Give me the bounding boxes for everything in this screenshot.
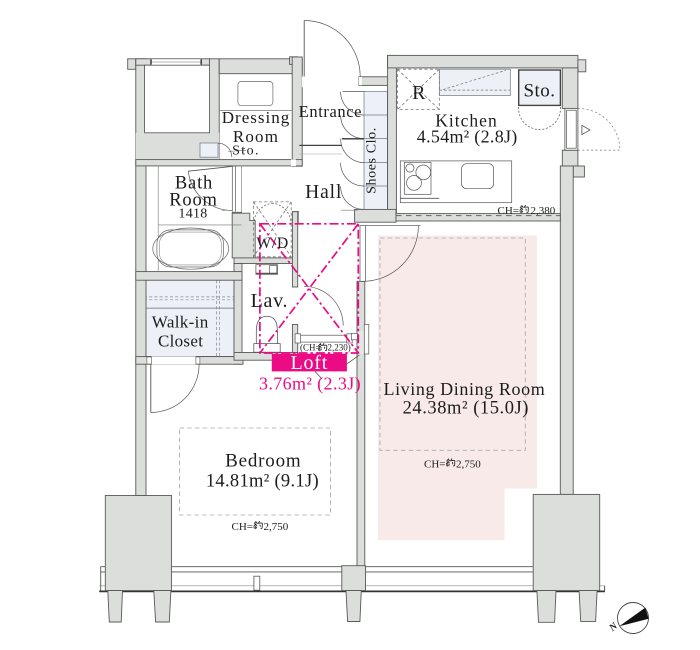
svg-text:24.38m² (15.0J): 24.38m² (15.0J) [403,399,529,419]
svg-text:2,380: 2,380 [531,205,556,217]
svg-text:3.76m² (2.3J): 3.76m² (2.3J) [259,374,361,395]
svg-text:2,750: 2,750 [456,459,481,471]
svg-text:Lav.: Lav. [251,290,289,312]
svg-text:2,750: 2,750 [264,521,289,533]
svg-text:CH=: CH= [232,521,253,533]
svg-text:2,230): 2,230) [328,343,351,353]
svg-text:(CH=: (CH= [300,343,321,353]
svg-text:4.54m² (2.8J): 4.54m² (2.8J) [417,127,518,148]
svg-text:Sto.: Sto. [523,81,555,102]
svg-text:Loft: Loft [290,352,328,374]
svg-text:Entrance: Entrance [299,102,362,121]
svg-text:Walk-in: Walk-in [152,313,209,332]
svg-text:Shoes Clo.: Shoes Clo. [365,127,380,194]
svg-text:14.81m² (9.1J): 14.81m² (9.1J) [206,472,319,492]
svg-text:Dressing: Dressing [222,108,290,127]
svg-text:1418: 1418 [178,207,207,222]
svg-text:Closet: Closet [158,332,203,351]
svg-text:Bedroom: Bedroom [225,451,301,472]
svg-text:R: R [412,82,426,104]
svg-text:CH=: CH= [424,459,445,471]
svg-text:CH=: CH= [498,205,519,217]
svg-text:W/D: W/D [256,235,289,252]
svg-text:Hall: Hall [305,182,342,203]
svg-text:Living Dining Room: Living Dining Room [383,379,545,399]
svg-text:Sto.: Sto. [232,144,260,159]
